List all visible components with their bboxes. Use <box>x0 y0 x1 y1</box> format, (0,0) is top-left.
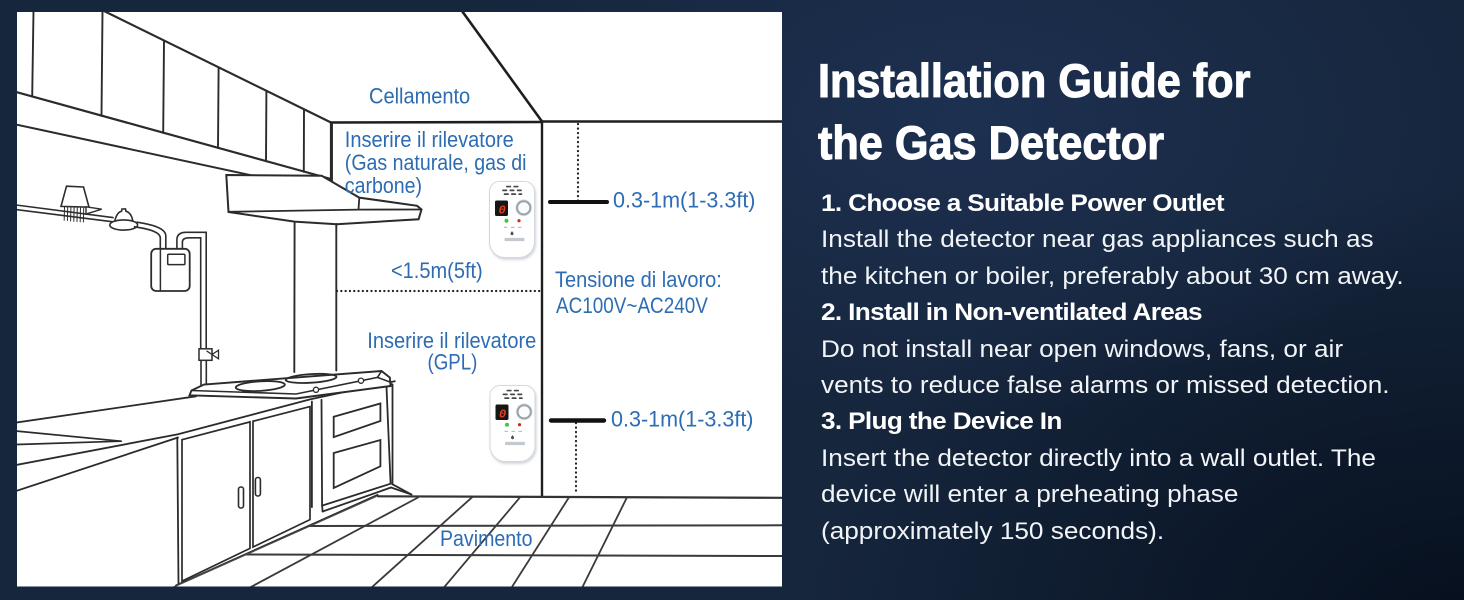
svg-text:(GPL): (GPL) <box>428 351 478 375</box>
svg-text:carbone): carbone) <box>345 174 422 198</box>
svg-text:0.3-1m(1-3.3ft): 0.3-1m(1-3.3ft) <box>613 187 755 212</box>
svg-text:(Gas naturale, gas di: (Gas naturale, gas di <box>345 151 527 175</box>
svg-text:<1.5m(5ft): <1.5m(5ft) <box>391 259 483 283</box>
svg-text:Inserire il rilevatore: Inserire il rilevatore <box>367 329 536 353</box>
svg-text:Tensione di lavoro:: Tensione di lavoro: <box>555 268 722 292</box>
svg-text:AC100V~AC240V: AC100V~AC240V <box>556 294 708 319</box>
svg-text:Inserire il rilevatore: Inserire il rilevatore <box>345 128 514 152</box>
svg-text:Cellamento: Cellamento <box>369 85 470 109</box>
svg-text:0.3-1m(1-3.3ft): 0.3-1m(1-3.3ft) <box>611 406 753 431</box>
svg-text:Pavimento: Pavimento <box>440 527 532 551</box>
